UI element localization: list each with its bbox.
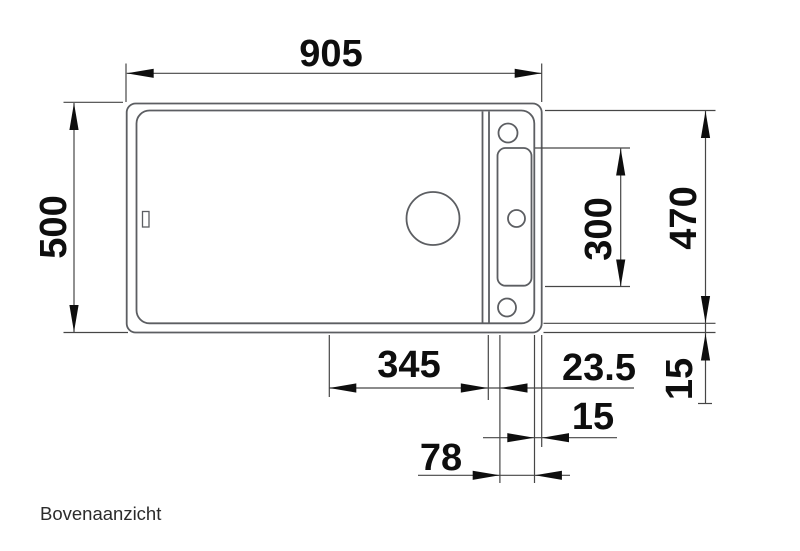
sink-outer-rim-outline <box>127 104 542 333</box>
dim-label-overall-width: 905 <box>299 33 362 75</box>
dim-label-bowl-width: 345 <box>377 344 440 386</box>
dim-label-rim-right-vertical: 15 <box>659 358 701 400</box>
tap-hole-middle <box>508 210 525 227</box>
dim-label-tap-ledge-length: 300 <box>578 197 620 260</box>
dim-label-inner-depth: 470 <box>663 186 705 249</box>
dim-label-ledge-width: 78 <box>420 437 462 479</box>
dimension-labels: 905 500 300 470 15 345 23.5 15 78 <box>33 33 705 479</box>
tap-hole-top <box>499 124 518 143</box>
sink-body <box>127 104 542 333</box>
drain-hole-circle <box>407 192 460 245</box>
extension-lines <box>64 64 716 484</box>
view-caption: Bovenaanzicht <box>40 503 161 524</box>
dim-label-rim-right-horizontal: 15 <box>572 396 614 438</box>
technical-drawing-canvas: 905 500 300 470 15 345 23.5 15 78 Bovena… <box>0 0 800 551</box>
overflow-slot <box>143 212 150 228</box>
tap-hole-bottom <box>498 299 516 317</box>
dim-label-overall-depth: 500 <box>33 195 75 258</box>
sink-top-view-drawing: 905 500 300 470 15 345 23.5 15 78 Bovena… <box>0 0 800 551</box>
sink-inner-basin-outline <box>137 111 535 324</box>
dim-label-offset-right: 23.5 <box>562 347 636 389</box>
tap-ledge-recess-outline <box>498 148 532 286</box>
